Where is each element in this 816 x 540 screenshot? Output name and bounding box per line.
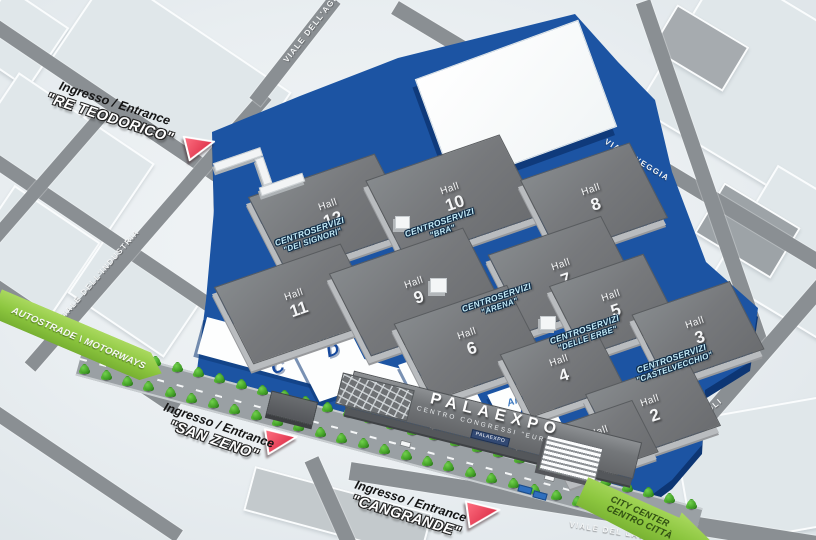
- tree-icon: [337, 434, 346, 443]
- tree-icon: [323, 403, 332, 412]
- tree-icon: [359, 439, 368, 448]
- hall-number: 4: [557, 366, 571, 385]
- tree-icon: [237, 380, 246, 389]
- connector-block: [395, 216, 410, 229]
- connector-block: [540, 316, 556, 330]
- hall-number: 9: [412, 288, 426, 307]
- tree-icon: [473, 443, 482, 452]
- tree-icon: [408, 426, 417, 435]
- tree-icon: [387, 420, 396, 429]
- tree-icon: [466, 468, 475, 477]
- tree-icon: [173, 363, 182, 372]
- tree-icon: [402, 451, 411, 460]
- hall-number: 6: [465, 339, 479, 358]
- tree-icon: [423, 457, 432, 466]
- hall-number: 8: [589, 195, 603, 214]
- tree-icon: [509, 479, 518, 488]
- fairground-map: PALAEXPO CENTRO CONGRESSI "EUROPA" PALAE…: [0, 0, 816, 540]
- tree-icon: [273, 417, 282, 426]
- hall-number: 11: [288, 298, 311, 320]
- tree-icon: [687, 500, 696, 509]
- tree-icon: [123, 377, 132, 386]
- tree-icon: [623, 483, 632, 492]
- tree-icon: [316, 428, 325, 437]
- tree-icon: [187, 394, 196, 403]
- tree-icon: [209, 399, 218, 408]
- tree-icon: [252, 411, 261, 420]
- hall-number: 2: [648, 406, 662, 425]
- connector-block: [430, 278, 447, 293]
- tree-icon: [102, 371, 111, 380]
- tree-icon: [487, 474, 496, 483]
- entrance-arrow-icon: [465, 496, 503, 533]
- tree-icon: [258, 386, 267, 395]
- tree-icon: [552, 491, 561, 500]
- tree-icon: [166, 388, 175, 397]
